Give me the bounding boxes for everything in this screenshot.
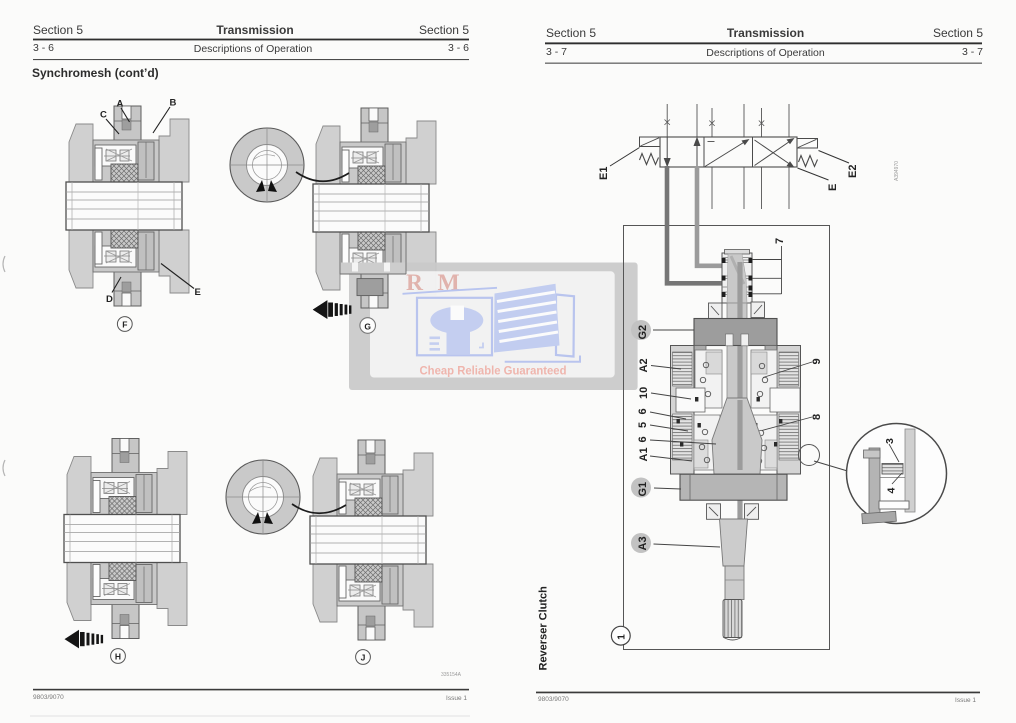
svg-text:5: 5 xyxy=(637,422,649,428)
svg-text:9: 9 xyxy=(811,358,823,364)
svg-text:B: B xyxy=(170,98,177,109)
svg-text:A394970: A394970 xyxy=(894,161,900,181)
svg-text:J: J xyxy=(361,653,366,663)
svg-text:1: 1 xyxy=(617,634,628,640)
svg-text:G2: G2 xyxy=(637,325,649,340)
svg-text:A3: A3 xyxy=(637,536,649,550)
svg-text:8: 8 xyxy=(811,414,823,420)
svg-text:E2: E2 xyxy=(847,165,859,178)
svg-text:D: D xyxy=(106,294,113,305)
svg-text:Reverser Clutch: Reverser Clutch xyxy=(538,586,550,671)
svg-text:E: E xyxy=(195,287,201,298)
svg-text:E: E xyxy=(827,184,839,191)
svg-text:A: A xyxy=(117,99,124,110)
svg-text:335154A: 335154A xyxy=(441,672,462,678)
svg-text:6: 6 xyxy=(637,436,649,442)
svg-text:H: H xyxy=(115,652,121,662)
svg-text:10: 10 xyxy=(638,387,650,399)
svg-text:4: 4 xyxy=(886,488,898,494)
svg-text:C: C xyxy=(100,110,107,121)
svg-text:Cheap Reliable Guaranteed: Cheap Reliable Guaranteed xyxy=(420,363,567,377)
svg-text:6: 6 xyxy=(637,408,649,414)
svg-text:E1: E1 xyxy=(598,167,610,180)
svg-text:A1: A1 xyxy=(638,447,650,461)
svg-text:7: 7 xyxy=(774,238,786,244)
svg-text:3: 3 xyxy=(884,438,896,444)
svg-text:F: F xyxy=(122,320,127,330)
svg-text:G1: G1 xyxy=(637,482,649,497)
svg-text:G: G xyxy=(364,321,371,331)
svg-text:A2: A2 xyxy=(638,358,650,372)
